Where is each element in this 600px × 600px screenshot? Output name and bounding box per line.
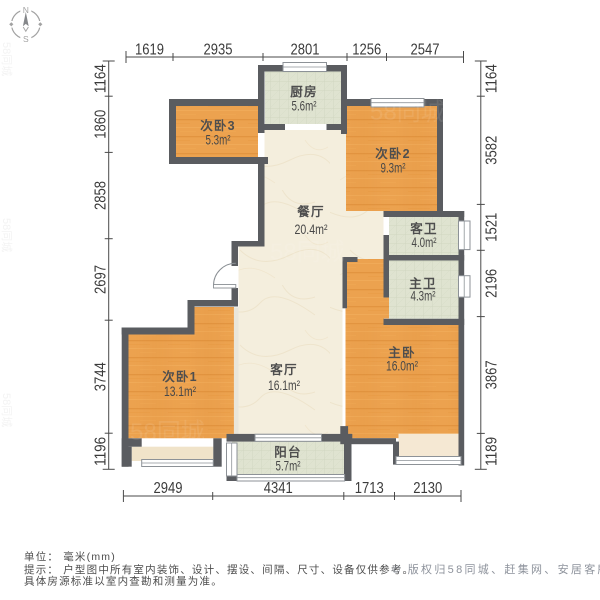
svg-text:3582: 3582 bbox=[484, 136, 501, 165]
svg-text:2196: 2196 bbox=[484, 269, 501, 298]
svg-text:1164: 1164 bbox=[93, 64, 110, 93]
svg-text:2949: 2949 bbox=[154, 480, 183, 497]
svg-text:提示： 户型图中所有室内装饰、设计、摆设、间隔、尺寸、设备: 提示： 户型图中所有室内装饰、设计、摆设、间隔、尺寸、设备仅供参考。 bbox=[24, 563, 414, 576]
svg-text:9.3m²: 9.3m² bbox=[381, 161, 406, 176]
svg-text:1164: 1164 bbox=[484, 64, 501, 93]
svg-text:4.3m²: 4.3m² bbox=[411, 289, 436, 304]
svg-text:4.0m²: 4.0m² bbox=[412, 235, 437, 250]
svg-text:2935: 2935 bbox=[204, 42, 233, 59]
svg-text:1713: 1713 bbox=[355, 480, 384, 497]
svg-text:厨房: 厨房 bbox=[290, 84, 317, 99]
svg-text:1256: 1256 bbox=[352, 42, 381, 59]
svg-text:58同城: 58同城 bbox=[270, 239, 345, 266]
svg-text:客厅: 客厅 bbox=[269, 362, 297, 377]
svg-text:阳台: 阳台 bbox=[274, 445, 301, 460]
svg-text:58同城: 58同城 bbox=[0, 393, 13, 427]
svg-text:58同城: 58同城 bbox=[0, 218, 13, 252]
svg-text:1860: 1860 bbox=[93, 109, 110, 138]
svg-text:16.1m²: 16.1m² bbox=[268, 378, 300, 393]
svg-text:1619: 1619 bbox=[135, 42, 164, 59]
svg-text:次卧2: 次卧2 bbox=[375, 146, 411, 161]
svg-text:具体房源标准以室内查勘和测量为准。: 具体房源标准以室内查勘和测量为准。 bbox=[24, 575, 223, 588]
svg-text:4341: 4341 bbox=[264, 480, 293, 497]
svg-text:5.6m²: 5.6m² bbox=[292, 99, 317, 114]
svg-text:1196: 1196 bbox=[93, 437, 110, 466]
svg-text:13.1m²: 13.1m² bbox=[164, 384, 196, 399]
svg-text:58同城: 58同城 bbox=[370, 99, 445, 126]
svg-text:客卫: 客卫 bbox=[409, 221, 437, 236]
svg-text:© 版权归58同城、赶集网、安居客所有: © 版权归58同城、赶集网、安居客所有 bbox=[392, 562, 600, 576]
svg-text:次卧3: 次卧3 bbox=[200, 118, 236, 133]
svg-text:1521: 1521 bbox=[484, 213, 501, 242]
svg-text:20.4m²: 20.4m² bbox=[295, 222, 328, 237]
svg-text:5.7m²: 5.7m² bbox=[276, 459, 301, 474]
svg-text:S: S bbox=[23, 34, 29, 44]
svg-text:5.3m²: 5.3m² bbox=[206, 133, 231, 148]
svg-text:餐厅: 餐厅 bbox=[296, 204, 324, 219]
svg-text:16.0m²: 16.0m² bbox=[386, 359, 418, 374]
svg-text:3744: 3744 bbox=[93, 362, 110, 391]
svg-text:次卧1: 次卧1 bbox=[162, 369, 198, 384]
svg-text:2130: 2130 bbox=[413, 480, 442, 497]
svg-text:2547: 2547 bbox=[411, 42, 440, 59]
svg-text:3867: 3867 bbox=[484, 360, 501, 389]
svg-text:2697: 2697 bbox=[93, 265, 110, 294]
svg-text:2801: 2801 bbox=[291, 42, 320, 59]
svg-text:单位： 毫米(mm): 单位： 毫米(mm) bbox=[24, 550, 116, 563]
svg-text:58同城: 58同城 bbox=[0, 42, 13, 76]
svg-text:58同城: 58同城 bbox=[130, 419, 205, 446]
svg-text:2858: 2858 bbox=[93, 181, 110, 210]
svg-text:1189: 1189 bbox=[484, 437, 501, 466]
